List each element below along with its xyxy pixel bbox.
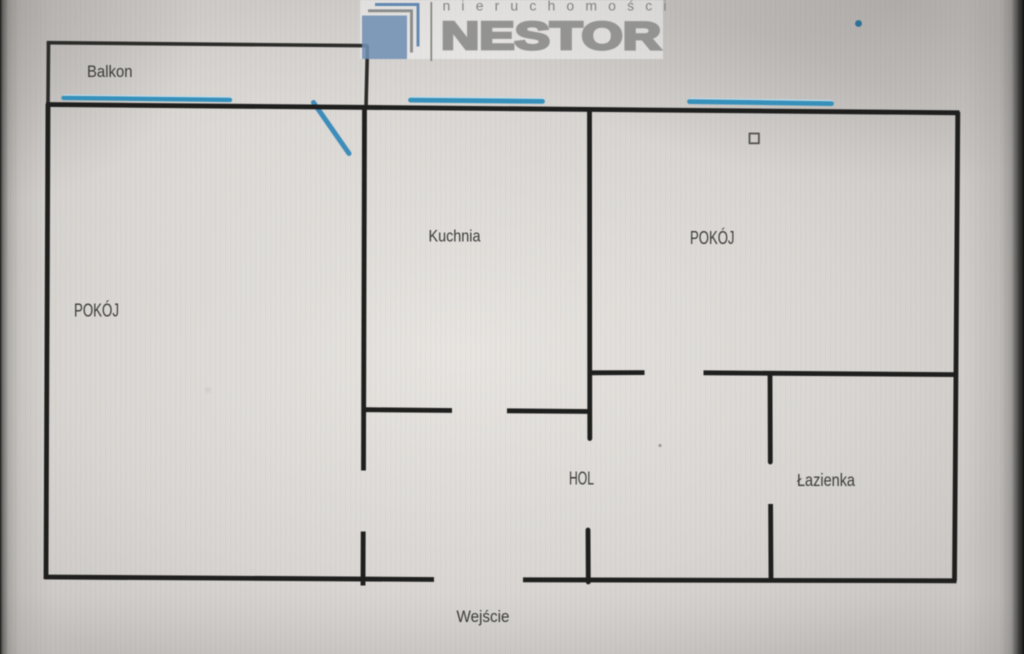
svg-text:Balkon: Balkon xyxy=(87,62,133,81)
svg-text:POKÓJ: POKÓJ xyxy=(74,300,119,321)
svg-text:POKÓJ: POKÓJ xyxy=(690,227,735,248)
svg-text:HOL: HOL xyxy=(569,469,594,489)
svg-text:nieruchomości: nieruchomości xyxy=(443,0,667,14)
svg-text:Łazienka: Łazienka xyxy=(797,470,855,490)
svg-text:Kuchnia: Kuchnia xyxy=(429,227,481,246)
svg-text:NESTOR: NESTOR xyxy=(441,15,661,58)
svg-text:Wejście: Wejście xyxy=(457,607,510,626)
